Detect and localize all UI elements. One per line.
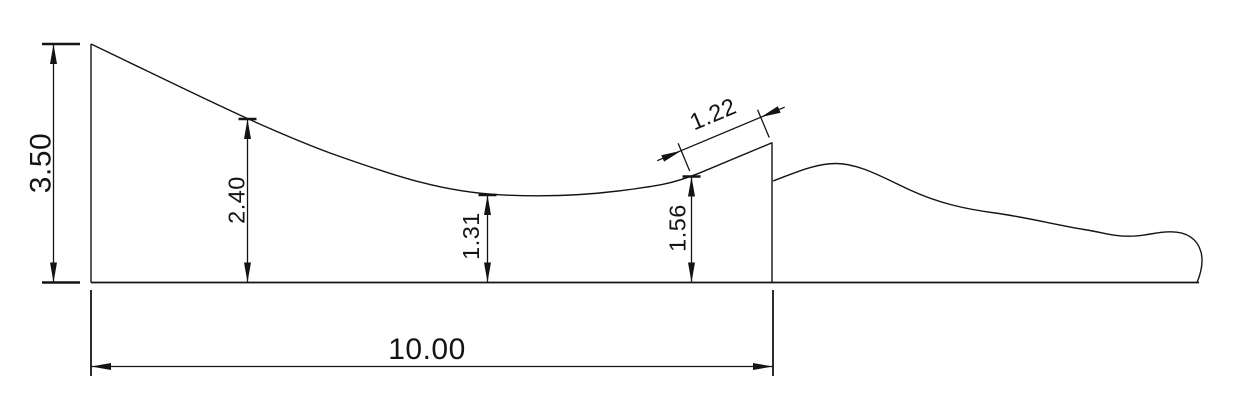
landing-hill-path (773, 164, 1202, 283)
arrowhead-upslope-icon (661, 151, 681, 162)
arrowhead-up-icon (484, 195, 491, 215)
arrowhead-up-icon (244, 119, 251, 139)
arrowhead-up-icon (50, 44, 57, 64)
dimension-label: 3.50 (25, 133, 58, 193)
arrowhead-downslope-icon (761, 106, 781, 117)
dimension-inrun-height: 2.40 (224, 119, 257, 283)
ramp-profile-drawing: 3.50 2.40 1.31 1.56 (0, 0, 1234, 408)
dimension-takeoff-ramp-length: 1.22 (657, 93, 785, 171)
dimension-overall-height: 3.50 (25, 44, 81, 283)
arrowhead-down-icon (50, 263, 57, 283)
arrowhead-down-icon (244, 263, 251, 283)
dimension-overall-length: 10.00 (91, 290, 773, 376)
arrowhead-left-icon (91, 363, 111, 370)
arrowhead-down-icon (484, 263, 491, 283)
arrowhead-down-icon (688, 263, 695, 283)
arrowhead-right-icon (753, 363, 773, 370)
dimension-label: 2.40 (224, 176, 250, 224)
dimension-valley-height: 1.31 (458, 195, 497, 283)
technical-drawing-canvas: 3.50 2.40 1.31 1.56 (0, 0, 1234, 408)
profile-outline (91, 44, 1202, 283)
arrowhead-up-icon (688, 177, 695, 197)
dimension-label: 1.31 (458, 212, 484, 260)
dimension-label: 10.00 (388, 333, 466, 366)
dimension-label: 1.56 (665, 204, 691, 252)
dimension-takeoff-base-height: 1.56 (665, 177, 701, 283)
